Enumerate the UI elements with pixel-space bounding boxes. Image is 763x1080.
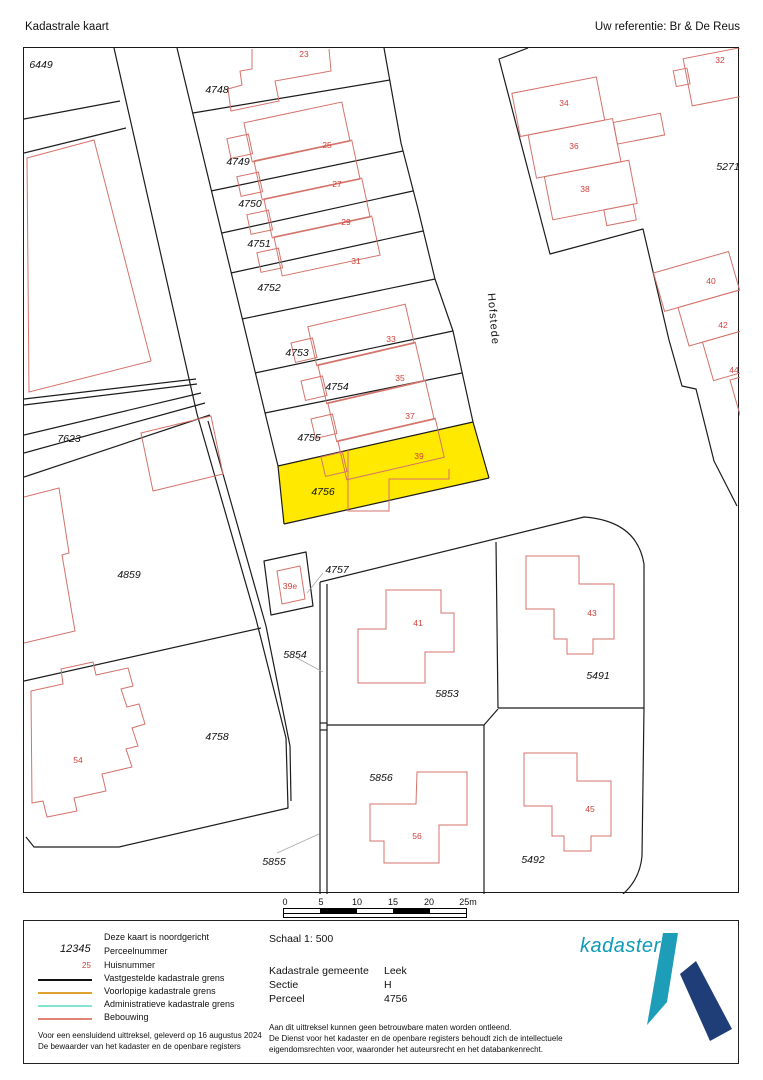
legend-label-established-boundary: Vastgestelde kadastrale grens [104,973,224,983]
house-number-25: 25 [322,140,332,150]
street-label: Hofstede [485,293,501,346]
scale-tick: 20 [424,897,434,907]
building-row-40-44 [654,239,740,434]
building-row-34-38 [512,66,680,238]
kadaster-logo-icon [636,927,736,1049]
parcel-label-4859: 4859 [117,569,141,581]
house-number-39e: 39e [283,581,297,591]
parcel-label-6449: 6449 [29,59,53,71]
legend-line-established-boundary [38,979,92,981]
building-row-25-31 [224,102,380,280]
parcel-label-5856: 5856 [369,772,393,784]
cadastral-extract-page: { "header": { "title": "Kadastrale kaart… [0,0,763,1080]
legend-sample-parcelnumber: 12345 [60,943,91,955]
house-number-23: 23 [299,49,309,59]
disclaimer-line2: De Dienst voor het kadaster en de openba… [269,1034,563,1043]
legend-label-administrative-boundary: Administratieve kadastrale grens [104,999,235,1009]
parcel-label-5854: 5854 [283,649,307,661]
section-label: Sectie [269,979,298,991]
house-number-54: 54 [73,755,83,765]
house-number-39: 39 [414,451,424,461]
scale-bar-strip [283,908,467,918]
municipality-value: Leek [384,965,407,977]
certification-line1: Voor een eensluidend uittreksel, gelever… [38,1031,262,1040]
scale-tick: 15 [388,897,398,907]
parcel-label-4751: 4751 [247,238,270,250]
parcel-label-4748: 4748 [205,84,229,96]
parcel-label-5271: 5271 [716,161,739,173]
scale-label: Schaal 1: 500 [269,933,333,945]
parcel-label-4750: 4750 [238,198,262,210]
house-number-43: 43 [587,608,597,618]
house-number-41: 41 [413,618,423,628]
legend-sample-housenumber: 25 [82,961,91,970]
legend-label-provisional-boundary: Voorlopige kadastrale grens [104,986,216,996]
house-number-44: 44 [729,365,739,375]
north-note: Deze kaart is noordgericht [104,932,209,942]
house-number-34: 34 [559,98,569,108]
map-area: Hofstede 6449474847494750475147524753475… [23,47,739,893]
house-number-40: 40 [706,276,716,286]
disclaimer-line1: Aan dit uittreksel kunnen geen betrouwba… [269,1023,511,1032]
parcel-label-4758: 4758 [205,731,229,743]
house-number-37: 37 [405,411,415,421]
house-number-27: 27 [332,179,342,189]
parcel-label-4756: 4756 [311,486,335,498]
legend-line-administrative-boundary [38,1005,92,1007]
page-title: Kadastrale kaart [25,21,109,33]
scale-bar: 0 5 10 15 20 25m [283,897,473,919]
house-number-56: 56 [412,831,422,841]
legend-label-parcelnumber: Perceelnummer [104,946,168,956]
house-number-42: 42 [718,320,728,330]
parcel-label-4754: 4754 [325,381,349,393]
parcel-label-5491: 5491 [586,670,609,682]
legend-label-building: Bebouwing [104,1012,149,1022]
house-number-29: 29 [341,217,351,227]
legend-line-building [38,1018,92,1020]
scale-tick: 5 [318,897,323,907]
certification-line2: De bewaarder van het kadaster en de open… [38,1042,241,1051]
parcel-label-4755: 4755 [297,432,321,444]
parcel-label-4753: 4753 [285,347,309,359]
parcel-label-5492: 5492 [521,854,545,866]
parcel-value: 4756 [384,993,407,1005]
parcel-label-4757: 4757 [325,564,350,576]
scale-tick: 10 [352,897,362,907]
scale-tick: 25m [459,897,477,907]
legend-line-provisional-boundary [38,992,92,994]
reference-text: Uw referentie: Br & De Reus [595,21,740,33]
municipality-label: Kadastrale gemeente [269,965,369,977]
house-number-33: 33 [386,334,396,344]
parcel-label-4749: 4749 [226,156,250,168]
parcel-label-4752: 4752 [257,282,281,294]
parcel-label-5855: 5855 [262,856,286,868]
house-number-31: 31 [351,256,361,266]
house-number-45: 45 [585,804,595,814]
parcel-label-7623: 7623 [57,433,81,445]
house-number-35: 35 [395,373,405,383]
house-number-38: 38 [580,184,590,194]
info-panel: Deze kaart is noordgericht 12345 Perceel… [23,920,739,1064]
disclaimer-line3: eigendomsrechten voor, waaronder het aut… [269,1045,543,1054]
parcel-label-row: Perceel [269,993,305,1005]
building-32 [671,48,740,108]
house-number-36: 36 [569,141,579,151]
section-value: H [384,979,392,991]
scale-tick: 0 [282,897,287,907]
legend-label-housenumber: Huisnummer [104,960,155,970]
map-svg: Hofstede 6449474847494750475147524753475… [24,48,740,894]
parcel-label-5853: 5853 [435,688,459,700]
house-number-32: 32 [715,55,725,65]
